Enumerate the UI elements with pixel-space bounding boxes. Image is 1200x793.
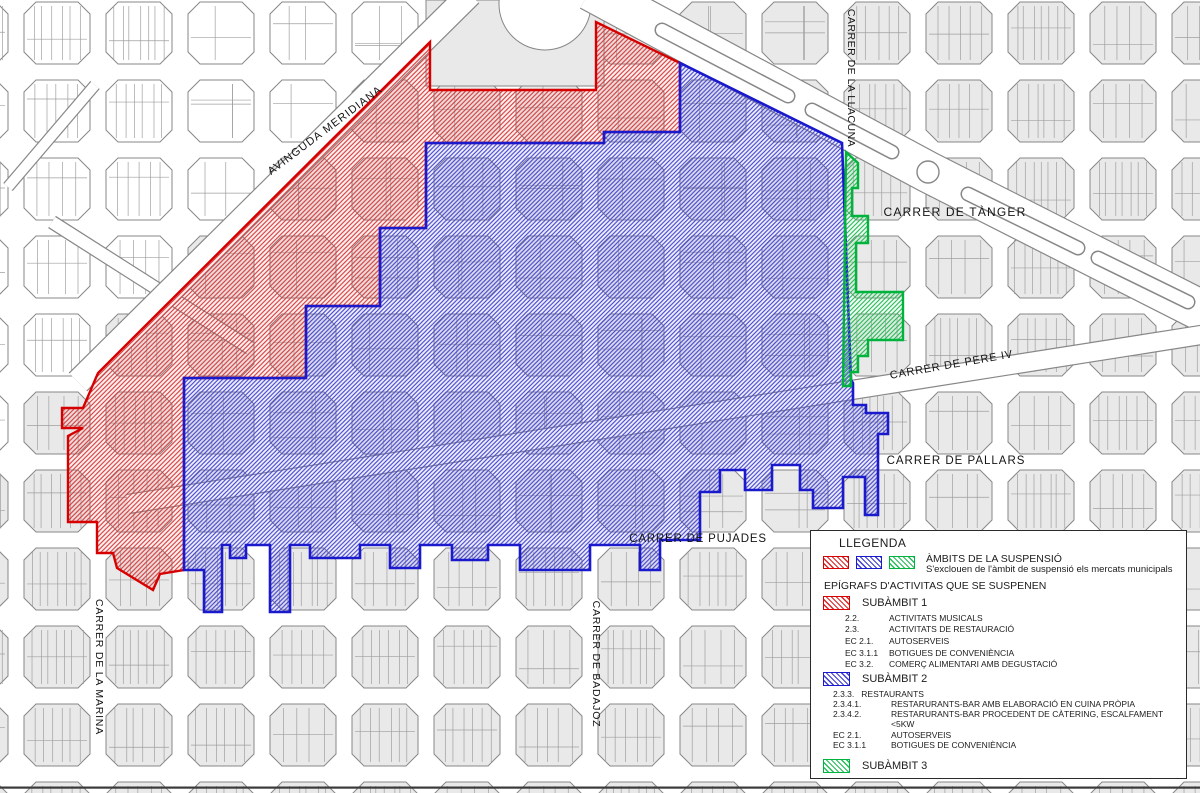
map-page: AVINGUDA MERIDIANA CARRER DE LA LLACUNA … (0, 0, 1200, 793)
legend-ambits-row: ÀMBITS DE LA SUSPENSIÓ S'exclouen de l'à… (823, 554, 1178, 575)
subambit2-swatch-icon (823, 672, 850, 686)
legend-box: LLEGENDA ÀMBITS DE LA SUSPENSIÓ S'exclou… (810, 530, 1187, 779)
section-label: SUBÀMBIT 3 (862, 760, 927, 772)
legend-item: EC 2.1.AUTOSERVEIS (845, 636, 1178, 648)
legend-section-subambit-1: SUBÀMBIT 1 2.2.ACTIVITATS MUSICALS 2.3.A… (823, 596, 1178, 671)
subambit1-swatch-icon (823, 596, 850, 610)
street-label-carrer-de-la-marina: CARRER DE LA MARINA (93, 599, 105, 735)
legend-item: EC 2.1.AUTOSERVEIS (833, 730, 1178, 740)
legend-title: LLEGENDA (839, 536, 1178, 550)
legend-item: EC 2.1.AUTOSERVEIS (845, 776, 1178, 779)
street-label-carrer-de-badajoz: CARRER DE BADAJOZ (590, 601, 602, 728)
street-label-carrer-de-pallars: CARRER DE PALLARS (887, 455, 1026, 467)
street-label-carrer-de-tanger: CARRER DE TÀNGER (884, 204, 1027, 219)
legend-item: EC 3.1.1BOTIGUES DE CONVENIÈNCIA (833, 740, 1178, 750)
legend-item: 2.2.ACTIVITATS MUSICALS (845, 613, 1178, 625)
map-frame-bottom-line (0, 787, 1200, 789)
legend-item: 2.3.4.1.RESTARURANTS-BAR AMB ELABORACIÓ … (833, 699, 1178, 709)
subambit2-swatch-icon (856, 556, 882, 569)
epigrafs-title: EPÍGRAFS D'ACTIVITAS QUE SE SUSPENEN (824, 580, 1178, 593)
street-label-carrer-de-la-llacuna: CARRER DE LA LLACUNA (845, 9, 857, 147)
legend-section-subambit-3: SUBÀMBIT 3 EC 2.1.AUTOSERVEIS EC 3.1.1BO… (823, 759, 1178, 779)
legend-section-subambit-2: SUBÀMBIT 2 2.3.3.RESTAURANTS 2.3.4.1.RES… (823, 672, 1178, 750)
section-label: SUBÀMBIT 1 (862, 597, 927, 609)
legend-item: 2.3.3.RESTAURANTS (833, 689, 1178, 699)
subambit3-swatch-icon (889, 556, 915, 569)
ambits-note: S'exclouen de l'àmbit de suspensió els m… (926, 565, 1173, 575)
legend-swatches (823, 554, 915, 575)
section-label: SUBÀMBIT 2 (862, 673, 927, 685)
legend-item: 2.3.4.2.RESTARURANTS-BAR PROCEDENT DE CÀ… (833, 709, 1178, 729)
legend-item: EC 3.1.1BOTIGUES DE CONVENIÈNCIA (845, 648, 1178, 660)
legend-item: EC 3.2.COMERÇ ALIMENTARI AMB DEGUSTACIÓ (845, 659, 1178, 671)
street-label-carrer-de-pujades: CARRER DE PUJADES (629, 533, 767, 545)
subambit3-swatch-icon (823, 759, 850, 773)
legend-item: 2.3.ACTIVITATS DE RESTAURACIÓ (845, 624, 1178, 636)
subambit1-swatch-icon (823, 556, 849, 569)
